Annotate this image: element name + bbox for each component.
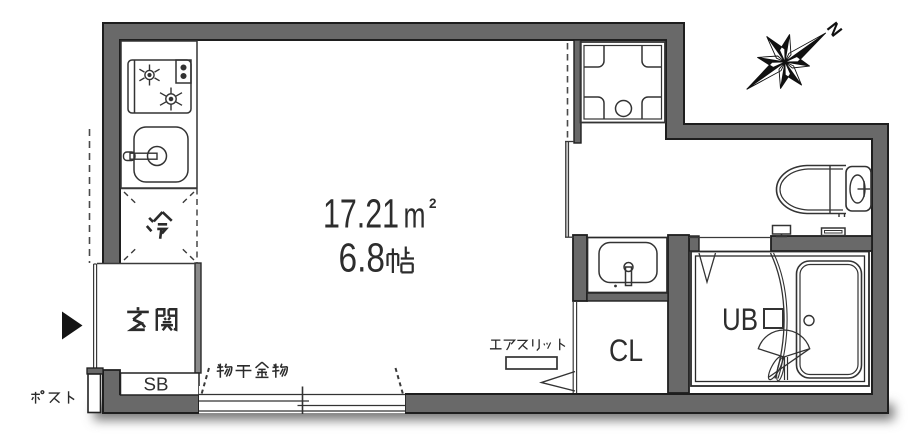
svg-text:SB: SB xyxy=(144,374,169,395)
svg-text:2: 2 xyxy=(429,196,437,211)
svg-text:17.21: 17.21 xyxy=(323,191,399,237)
svg-text:CL: CL xyxy=(609,332,643,368)
svg-text:UB: UB xyxy=(722,301,758,337)
svg-text:6.8: 6.8 xyxy=(339,235,386,281)
svg-text:m: m xyxy=(404,195,426,236)
